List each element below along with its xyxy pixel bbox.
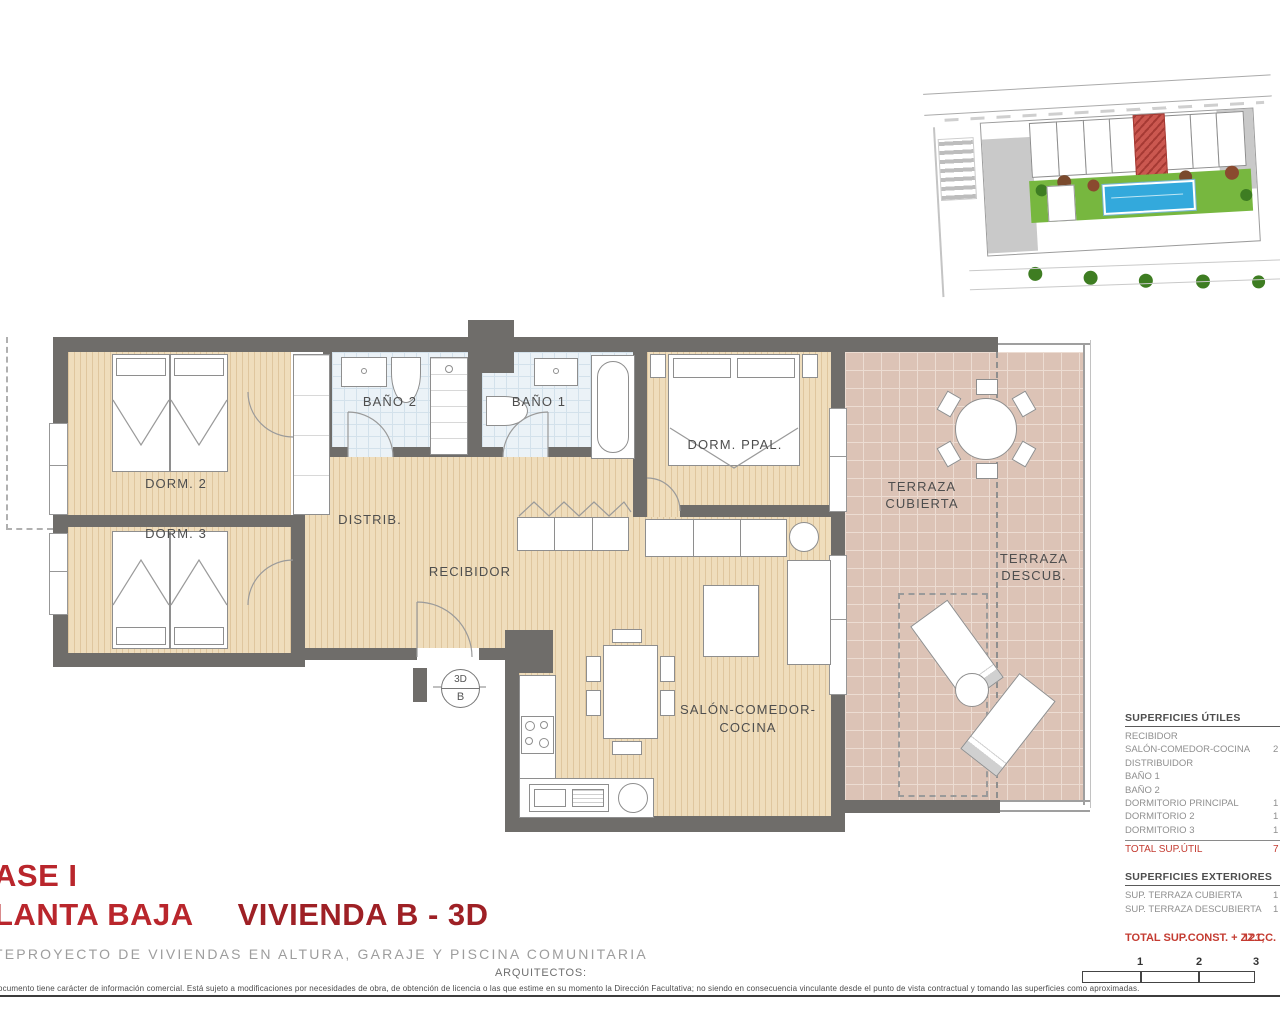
table-row: SALÓN-COMEDOR-COCINA2: [1125, 744, 1280, 757]
architects-label: ARQUITECTOS:: [495, 967, 587, 979]
table-header-exteriores: SUPERFICIES EXTERIORES: [1125, 871, 1280, 886]
scale-tick-label: 2: [1196, 956, 1202, 968]
room-label-terraza-cubierta-line1: TERRAZA: [888, 479, 956, 494]
room-label-terraza-cubierta-line2: CUBIERTA: [885, 496, 958, 511]
plan-detail-lines: [0, 0, 1280, 1024]
unit-marker: 3D B: [441, 669, 480, 708]
scale-bar: 1 2 3: [1082, 956, 1262, 986]
room-label-salon-line1: SALÓN-COMEDOR-: [680, 702, 816, 717]
scale-tick-label: 1: [1137, 956, 1143, 968]
table-row: BAÑO 2: [1125, 785, 1280, 798]
floor-plan: DORM. 2 DORM. 3 BAÑO 2 BAÑO 1 DORM. PPAL…: [0, 0, 1280, 1024]
room-label-bano1: BAÑO 1: [512, 394, 566, 409]
table-row: DORMITORIO 21: [1125, 811, 1280, 824]
room-label-terraza-descub-line2: DESCUB.: [1001, 568, 1067, 583]
table-row: DISTRIBUIDOR: [1125, 758, 1280, 771]
room-label-dorm2: DORM. 2: [145, 476, 207, 491]
room-label-salon-line2: COCINA: [719, 720, 776, 735]
unit-marker-plan-code: 3D: [442, 670, 479, 689]
table-row: DORMITORIO 31: [1125, 825, 1280, 838]
table-total-utiles: TOTAL SUP.ÚTIL7: [1125, 840, 1280, 858]
room-label-distrib: DISTRIB.: [338, 512, 402, 527]
plan-sheet: { "palette": { "wall": "#6f6d6a", "wood"…: [0, 0, 1280, 1024]
table-row: BAÑO 1: [1125, 771, 1280, 784]
table-header-utiles: SUPERFICIES ÚTILES: [1125, 712, 1280, 727]
phase-title: ASE I: [0, 858, 77, 894]
room-label-bano2: BAÑO 2: [363, 394, 417, 409]
surfaces-table: SUPERFICIES ÚTILES RECIBIDOR SALÓN-COMED…: [1125, 712, 1280, 944]
table-total-construida: TOTAL SUP.CONST. + ZZ.CC.121,: [1125, 932, 1280, 944]
bottom-rule: [0, 995, 1280, 997]
table-row: DORMITORIO PRINCIPAL1: [1125, 798, 1280, 811]
room-label-terraza-descub-line1: TERRAZA: [1000, 551, 1068, 566]
unit-marker-letter: B: [442, 689, 479, 706]
project-subtitle: TEPROYECTO DE VIVIENDAS EN ALTURA, GARAJ…: [0, 946, 648, 962]
table-row: RECIBIDOR: [1125, 731, 1280, 744]
table-row: SUP. TERRAZA CUBIERTA1: [1125, 890, 1280, 903]
table-row: SUP. TERRAZA DESCUBIERTA1: [1125, 904, 1280, 917]
plan-title: LANTA BAJAVIVIENDA B - 3D: [0, 897, 489, 933]
scale-bar-segments: [1082, 971, 1255, 983]
room-label-recibidor: RECIBIDOR: [429, 564, 511, 579]
room-label-dorm3: DORM. 3: [145, 526, 207, 541]
room-label-dorm-ppal: DORM. PPAL.: [688, 437, 783, 452]
dwelling-title: VIVIENDA B - 3D: [238, 897, 489, 932]
floor-level-title: LANTA BAJA: [0, 897, 194, 932]
disclaimer-text: ocumento tiene carácter de información c…: [0, 984, 1139, 993]
scale-tick-label: 3: [1253, 956, 1259, 968]
